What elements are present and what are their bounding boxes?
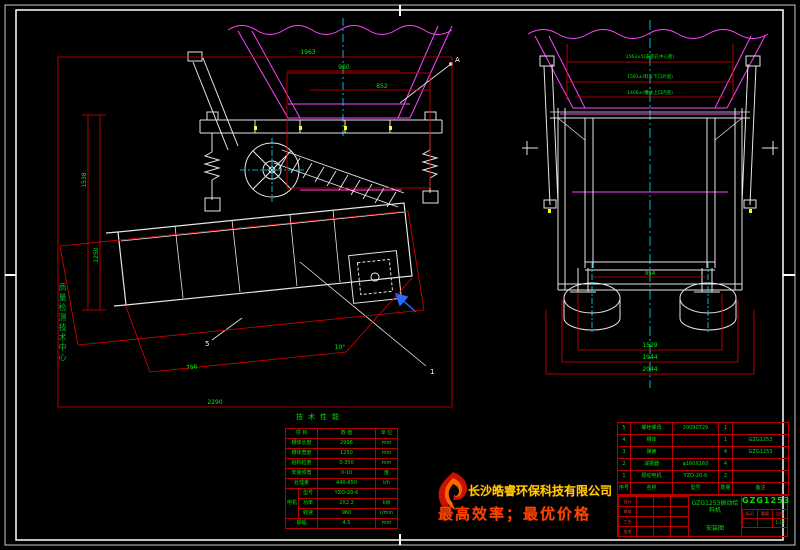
svg-text:1944: 1944	[642, 354, 657, 361]
svg-text:2290: 2290	[207, 399, 222, 406]
bom-row: 2减振器φ160X1604	[618, 459, 789, 471]
spec-table: 项 目 数 值 单 位 槽体长度2996mm 槽体宽度1250mm 给料粒度0-…	[285, 428, 398, 529]
spec-motor-row: 电机型号YZO-20-6	[286, 489, 398, 499]
svg-text:2044: 2044	[642, 366, 657, 373]
company-name: 长沙皓睿环保科技有限公司	[468, 482, 612, 499]
bom-row: 3弹簧4GZG1253	[618, 447, 789, 459]
leader-lines	[212, 63, 453, 367]
company-slogan: 最高效率；最优价格	[438, 503, 591, 524]
svg-text:960: 960	[338, 64, 350, 71]
trough	[106, 203, 412, 306]
spec-header-row: 项 目 数 值 单 位	[286, 429, 398, 439]
vertical-watermark: 质量检测技术中心	[57, 283, 68, 363]
spec-motor-row: 功率2X2.2kW	[286, 499, 398, 509]
svg-text:1963: 1963	[300, 49, 315, 56]
drawing-type: 安装图	[689, 523, 741, 532]
drawing-title: GZG1253振动给料机	[689, 500, 741, 514]
spec-row: 振幅4.5mm	[286, 519, 398, 529]
bom-row: 1振动电机YZO-20-62	[618, 471, 789, 483]
scale-value: 1:10	[773, 519, 788, 528]
leader-label-1: 1	[430, 368, 434, 376]
hopper-front	[228, 26, 452, 191]
svg-text:1593±(料斗下口外宽): 1593±(料斗下口外宽)	[627, 73, 673, 80]
svg-text:1406±(槽体上口内宽): 1406±(槽体上口内宽)	[627, 89, 673, 96]
svg-text:10°: 10°	[335, 344, 346, 351]
model-number: GZG1253	[742, 496, 787, 509]
spec-row: 安装倾角0-10度	[286, 469, 398, 479]
bom-row: 4槽体1GZG1253	[618, 435, 789, 447]
right-view: 1563±5(安装孔中心距) 1593±(料斗下口外宽) 1406±(槽体上口内…	[522, 20, 778, 388]
title-block: 设计 审核 工艺 批准 GZG1253振动给料机 安装图 GZG1253 标记 …	[617, 495, 788, 537]
hanger-left	[205, 133, 220, 211]
svg-text:1563±5(安装孔中心距): 1563±5(安装孔中心距)	[626, 53, 675, 60]
support-frame	[188, 52, 442, 150]
spec-table-title: 技术性能	[296, 412, 344, 422]
frame-bolts	[254, 126, 392, 130]
svg-text:954: 954	[645, 271, 656, 277]
spec-row: 处理量440-650t/h	[286, 479, 398, 489]
leader-label-5: 5	[205, 340, 209, 348]
spec-row: 槽体长度2996mm	[286, 439, 398, 449]
cad-canvas[interactable]: 1 5 A 1963 960 852	[0, 0, 800, 550]
spec-row: 给料粒度0-350mm	[286, 459, 398, 469]
louver-comb	[274, 150, 404, 207]
detail-square	[349, 251, 402, 304]
bom-row: 5螺栓螺母200907291	[618, 423, 789, 435]
hanger-right	[423, 133, 438, 203]
detail-label-a: A	[455, 56, 460, 64]
svg-text:852: 852	[376, 83, 388, 90]
hopper-rear	[528, 30, 768, 193]
title-block-name: GZG1253振动给料机 安装图	[688, 496, 742, 536]
spec-row: 槽体宽度1250mm	[286, 449, 398, 459]
title-block-model-area: GZG1253 标记 重量 比例 1:10	[742, 496, 787, 536]
detail-arrow	[396, 294, 416, 312]
title-block-signatures: 设计 审核 工艺 批准	[618, 496, 688, 536]
left-view: 1 5 A 1963 960 852	[58, 18, 460, 407]
svg-text:1538: 1538	[81, 172, 88, 187]
svg-text:756: 756	[186, 363, 198, 371]
bom-table: 5螺栓螺母200907291 4槽体1GZG1253 3弹簧4GZG1253 2…	[617, 422, 789, 495]
bom-header-row: 序号名称型号数量备注	[618, 483, 789, 495]
spec-motor-row: 转速960r/min	[286, 509, 398, 519]
svg-text:1529: 1529	[642, 342, 657, 349]
svg-text:1250: 1250	[93, 247, 100, 262]
